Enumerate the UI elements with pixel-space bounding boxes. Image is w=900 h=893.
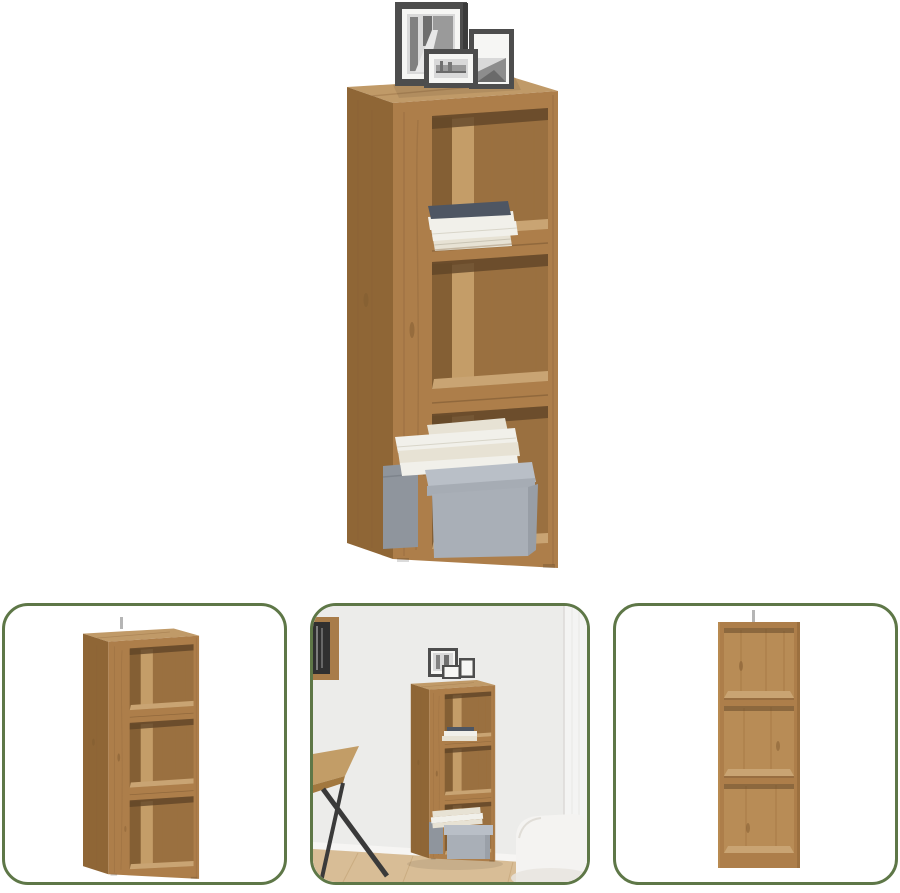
thumbnail-room-scene[interactable] bbox=[310, 603, 590, 885]
wall-fitting bbox=[120, 617, 123, 629]
thumbnail-angled-view[interactable] bbox=[2, 603, 287, 885]
thumbnail-row bbox=[0, 603, 900, 885]
books-top-compartment bbox=[428, 201, 518, 251]
main-product-image[interactable] bbox=[0, 0, 900, 603]
mini-books-top bbox=[442, 727, 477, 741]
cabinet-front-view bbox=[718, 622, 800, 868]
picture-frames bbox=[393, 2, 521, 98]
thumbnail-front-view[interactable] bbox=[613, 603, 898, 885]
storage-box-and-books bbox=[383, 418, 538, 558]
product-image-page bbox=[0, 0, 900, 893]
armchair bbox=[511, 814, 587, 882]
cabinet-angled-small bbox=[83, 628, 199, 878]
wall-shelf bbox=[313, 617, 339, 680]
wall-fitting bbox=[752, 610, 755, 622]
frame-small bbox=[424, 49, 478, 88]
